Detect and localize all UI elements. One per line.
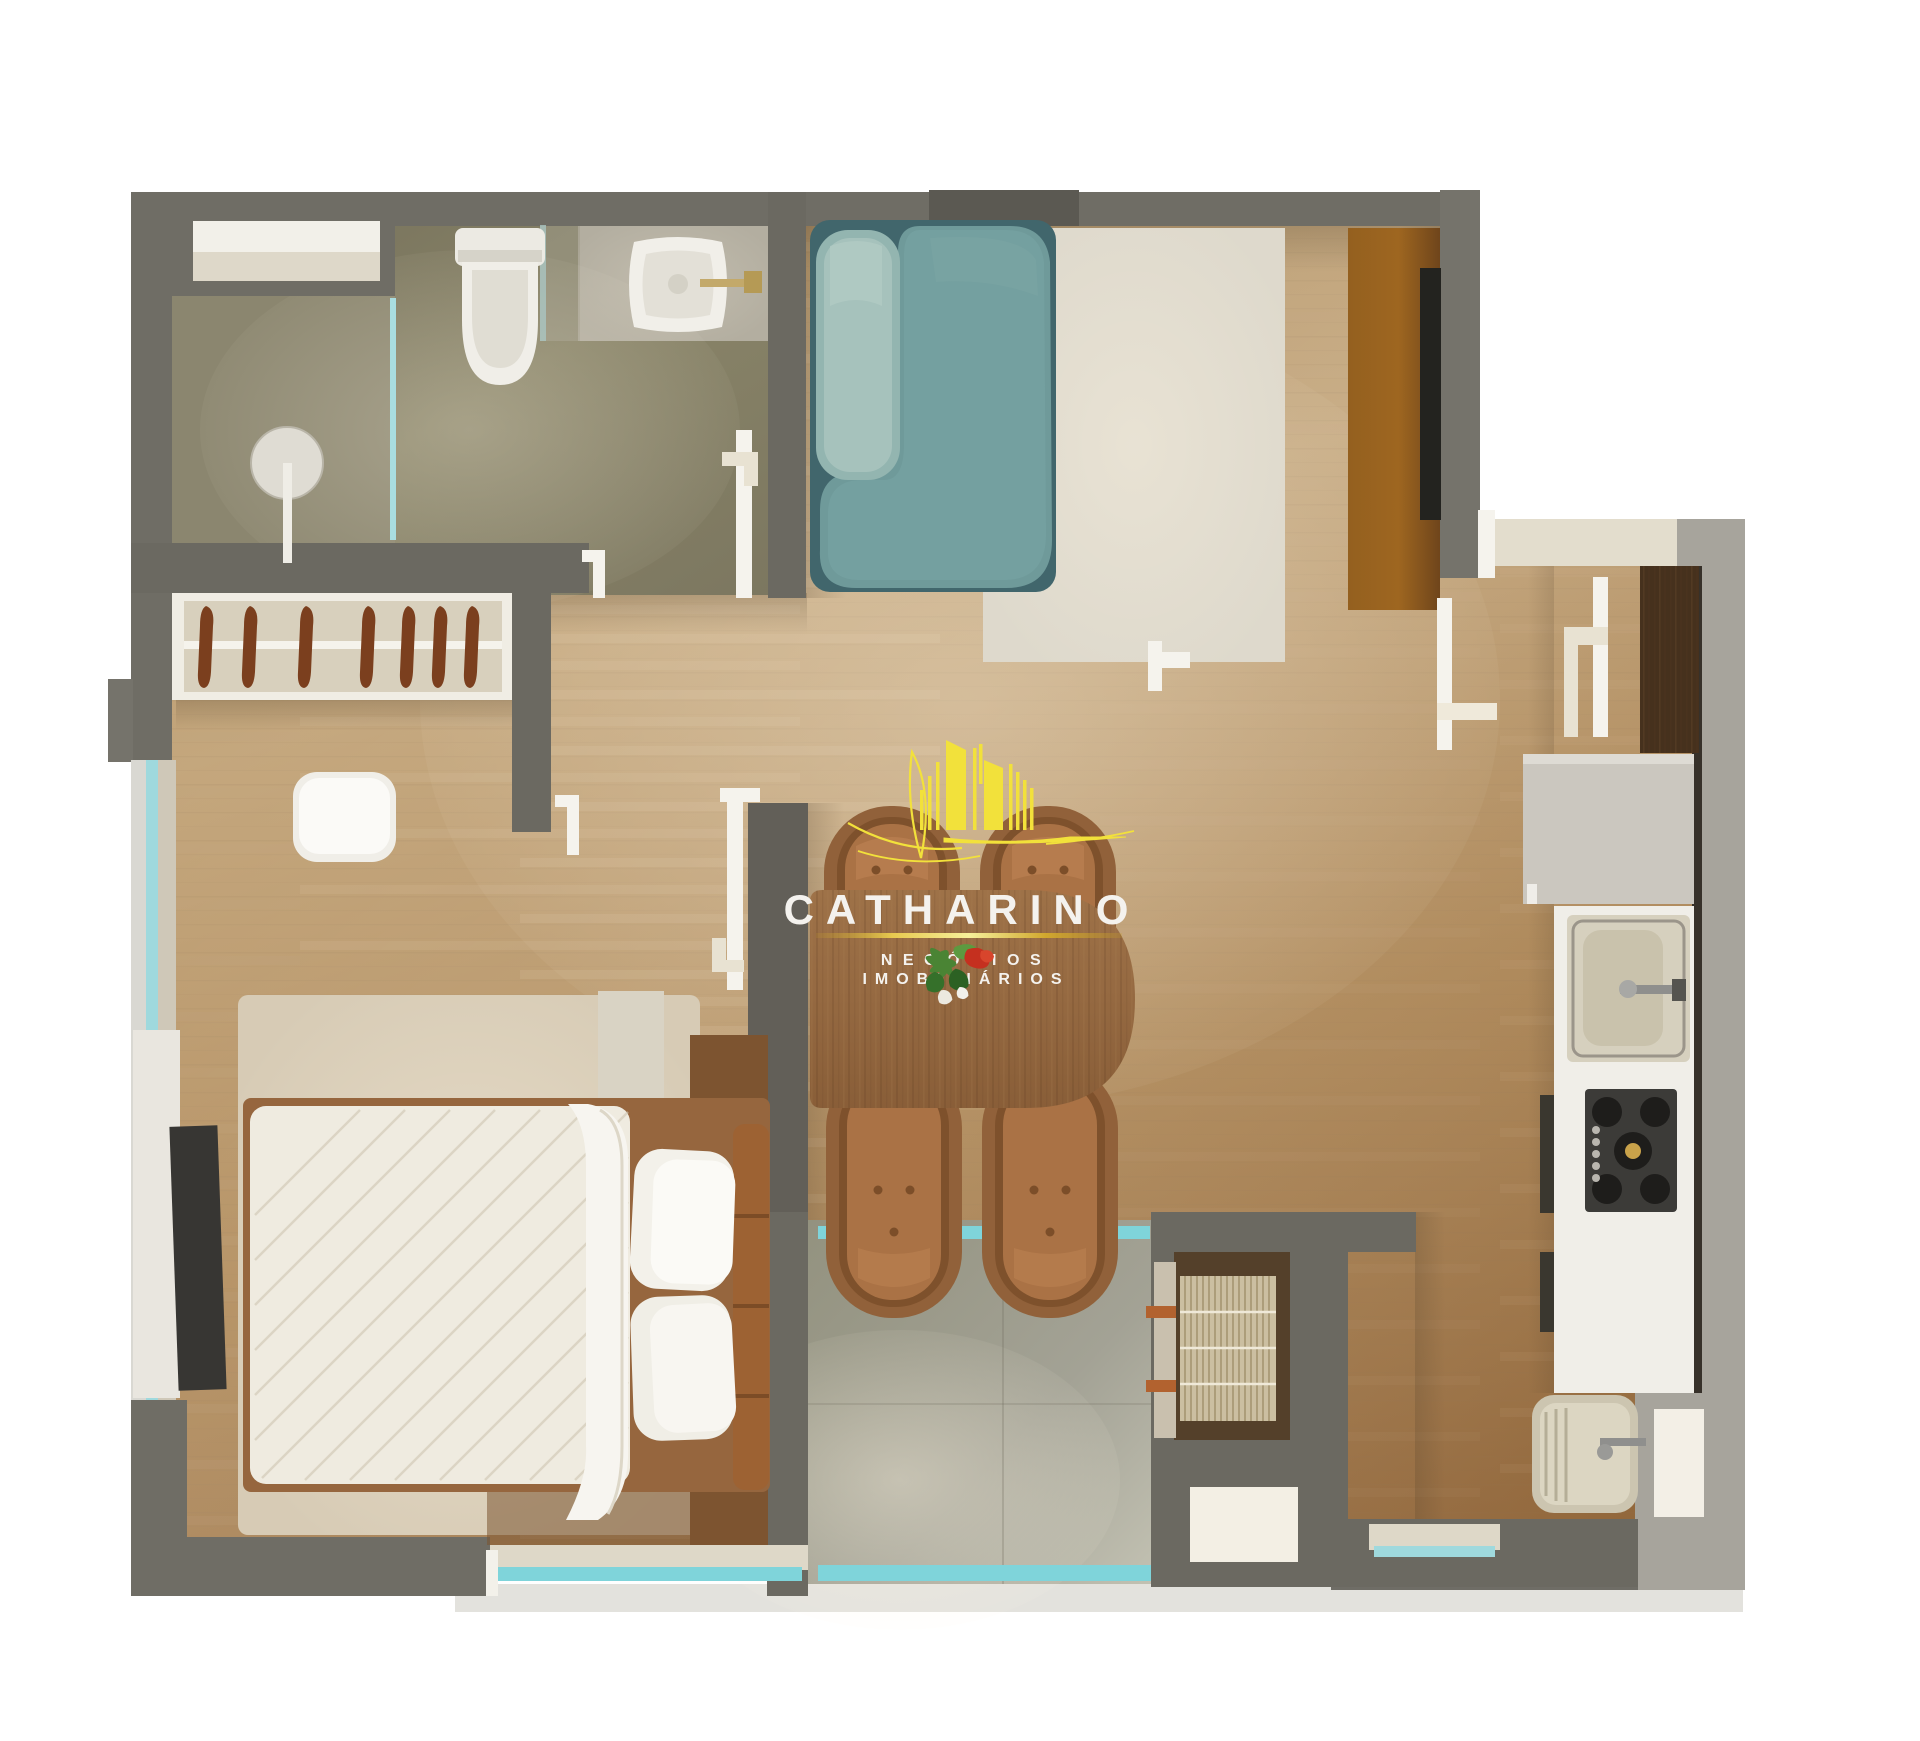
- svg-text:CATHARINO: CATHARINO: [784, 886, 1141, 933]
